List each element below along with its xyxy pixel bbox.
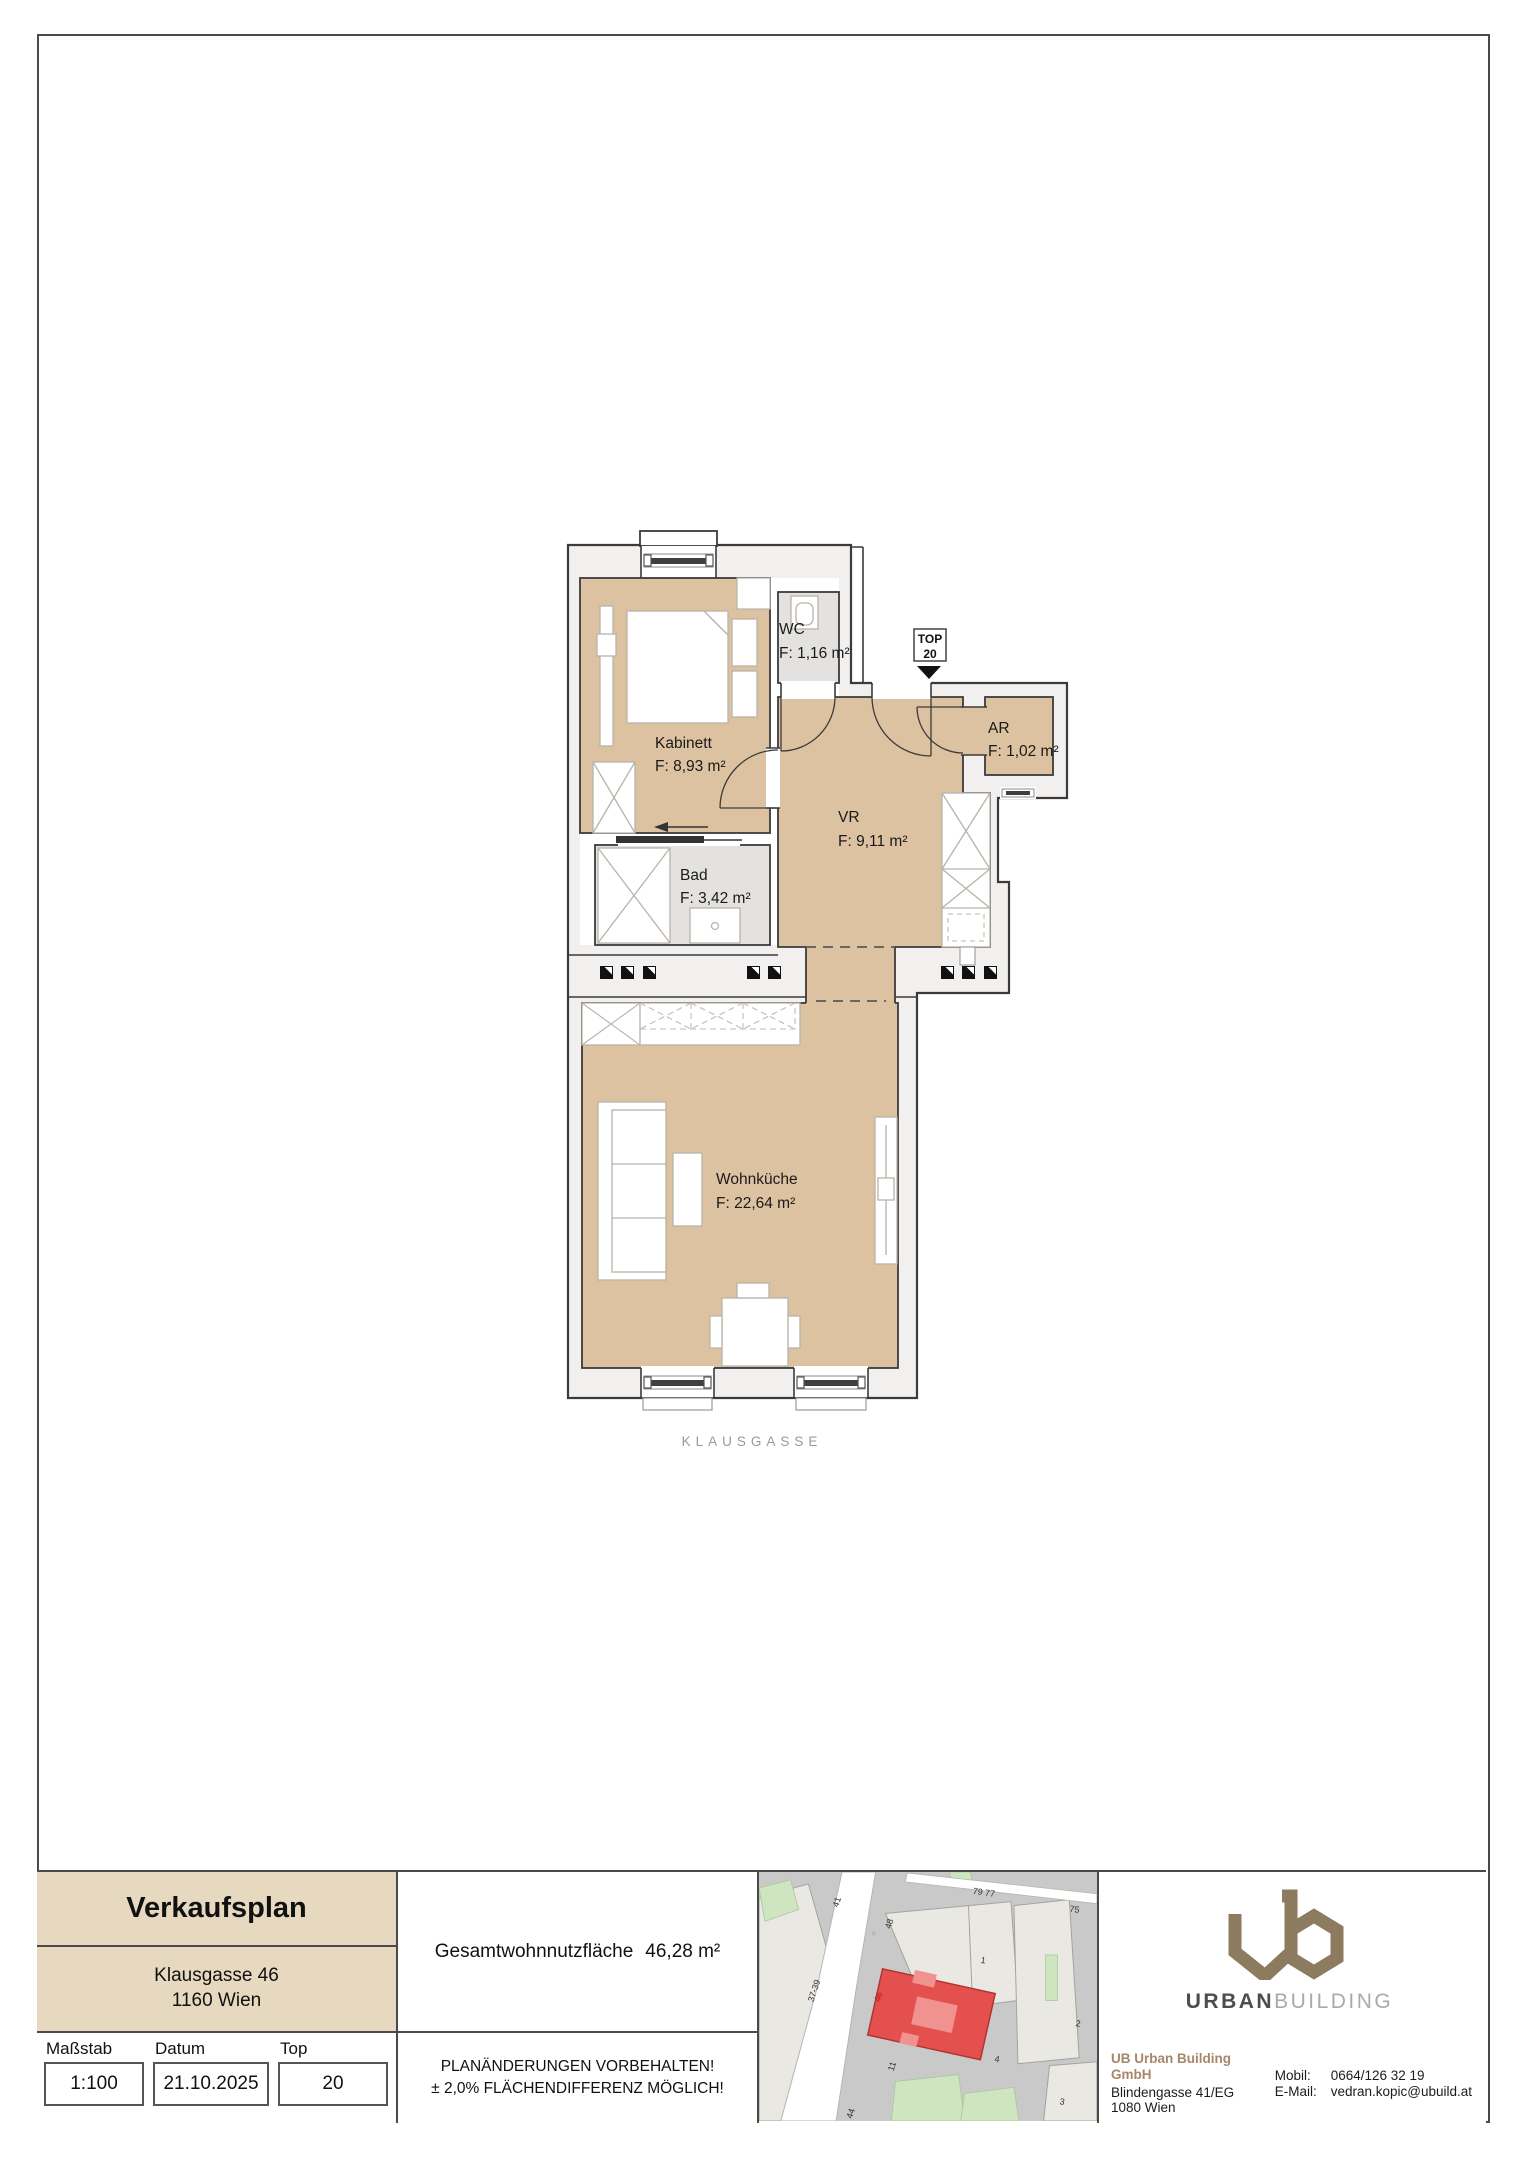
- titleblock-map-column: 41 48 37-39 79 77 75 1 2 4 3 11 44 46: [759, 1872, 1099, 2123]
- map-building: [1044, 2062, 1097, 2121]
- kabinett-wall-notch: [737, 578, 770, 609]
- top-marker-arrow-icon: [917, 666, 941, 679]
- scale-field: Maßstab 1:100: [44, 2038, 144, 2112]
- verkaufsplan-page: Kabinett F: 8,93 m² WC F: 1,16 m² VR F: …: [0, 0, 1527, 2160]
- map-label: 75: [1069, 1904, 1080, 1915]
- window-wohnkueche-right: [794, 1366, 868, 1410]
- titleblock-info-column: Gesamtwohnnutzfläche 46,28 m² PLANÄNDERU…: [398, 1872, 759, 2123]
- plan-title-cell: Verkaufsplan: [37, 1872, 396, 1947]
- dining-table: [722, 1298, 788, 1366]
- email-label: E-Mail:: [1275, 2084, 1331, 2100]
- site-map: 41 48 37-39 79 77 75 1 2 4 3 11 44 46: [759, 1872, 1097, 2121]
- window-kabinett: [640, 531, 717, 578]
- vr-closet: [942, 793, 990, 965]
- titleblock-plan-column: Verkaufsplan Klausgasse 46 1160 Wien Maß…: [37, 1872, 398, 2123]
- nightstand-top: [732, 619, 757, 666]
- address-line2: 1160 Wien: [172, 1989, 261, 2014]
- label-kabinett: Kabinett: [655, 735, 713, 752]
- coffee-table: [673, 1153, 702, 1226]
- flue-icon: [941, 966, 954, 979]
- window-ar: [1000, 787, 1036, 799]
- wardrobe: [600, 606, 613, 746]
- kitchen-counter: [582, 1003, 800, 1045]
- area-kabinett: F: 8,93 m²: [655, 758, 726, 775]
- top-value: 20: [278, 2062, 388, 2106]
- top-label: Top: [280, 2039, 388, 2059]
- label-ar: AR: [988, 720, 1010, 737]
- flue-icon: [962, 966, 975, 979]
- area-bad: F: 3,42 m²: [680, 890, 751, 907]
- street-label: KLAUSGASSE: [682, 1434, 823, 1449]
- top-field: Top 20: [278, 2038, 388, 2112]
- chair-top: [737, 1283, 769, 1298]
- window-wohnkueche-left: [641, 1366, 714, 1410]
- total-area-cell: Gesamtwohnnutzfläche 46,28 m²: [398, 1872, 757, 2033]
- brand-address-block: UB Urban Building GmbH Blindengasse 41/E…: [1111, 2051, 1275, 2116]
- wardrobe-knob: [597, 634, 616, 656]
- bed: [627, 611, 728, 723]
- brand-address2: 1080 Wien: [1111, 2100, 1275, 2116]
- flue-icon: [643, 966, 656, 979]
- top-marker-line2: 20: [923, 647, 937, 661]
- date-value: 21.10.2025: [153, 2062, 269, 2106]
- area-ar: F: 1,02 m²: [988, 743, 1059, 760]
- top-marker: TOP 20: [914, 629, 946, 679]
- duct: [960, 947, 975, 965]
- label-bad: Bad: [680, 867, 708, 884]
- total-area-label: Gesamtwohnnutzfläche: [435, 1941, 634, 1963]
- nightstand-bottom: [732, 671, 757, 717]
- scale-label: Maßstab: [46, 2039, 144, 2059]
- brand-contact-block: Mobil: 0664/126 32 19 E-Mail: vedran.kop…: [1275, 2068, 1472, 2116]
- plan-title: Verkaufsplan: [126, 1892, 307, 1925]
- titleblock-logo-column: URBANBUILDING UB Urban Building GmbH Bli…: [1099, 1872, 1480, 2123]
- flue-icon: [747, 966, 760, 979]
- area-wohnkueche: F: 22,64 m²: [716, 1195, 795, 1212]
- plan-address-cell: Klausgasse 46 1160 Wien: [37, 1947, 396, 2033]
- top-marker-line1: TOP: [918, 632, 942, 646]
- urban-building-logo-icon: [1225, 1888, 1355, 1980]
- chair-left: [710, 1316, 722, 1348]
- flue-icon: [984, 966, 997, 979]
- brand-contact: UB Urban Building GmbH Blindengasse 41/E…: [1111, 2051, 1472, 2116]
- address-line1: Klausgasse 46: [154, 1964, 279, 1989]
- flue-icon: [621, 966, 634, 979]
- mobile-label: Mobil:: [1275, 2068, 1331, 2084]
- area-wc: F: 1,16 m²: [779, 645, 850, 662]
- washbasin: [690, 908, 740, 943]
- area-vr: F: 9,11 m²: [838, 833, 907, 850]
- chair-right: [788, 1316, 800, 1348]
- brand-wordmark: URBANBUILDING: [1099, 1990, 1480, 2014]
- title-block: Verkaufsplan Klausgasse 46 1160 Wien Maß…: [37, 1870, 1486, 2123]
- label-wohnkueche: Wohnküche: [716, 1171, 798, 1188]
- notice-line2: ± 2,0% FLÄCHENDIFFERENZ MÖGLICH!: [431, 2078, 724, 2100]
- notice-cell: PLANÄNDERUNGEN VORBEHALTEN! ± 2,0% FLÄCH…: [398, 2033, 757, 2123]
- wordmark-bold: URBAN: [1186, 1990, 1274, 2013]
- flue-icon: [600, 966, 613, 979]
- floor-plan: Kabinett F: 8,93 m² WC F: 1,16 m² VR F: …: [0, 0, 1527, 2160]
- flue-icon: [768, 966, 781, 979]
- notice-line1: PLANÄNDERUNGEN VORBEHALTEN!: [441, 2056, 715, 2078]
- email-value: vedran.kopic@ubuild.at: [1331, 2084, 1472, 2100]
- corridor-passage: [806, 945, 895, 1005]
- wordmark-light: BUILDING: [1274, 1990, 1393, 2013]
- date-field: Datum 21.10.2025: [153, 2038, 269, 2112]
- scale-value: 1:100: [44, 2062, 144, 2106]
- label-vr: VR: [838, 809, 860, 826]
- brand-address1: Blindengasse 41/EG: [1111, 2085, 1275, 2101]
- total-area-value: 46,28 m²: [645, 1941, 720, 1963]
- brand-company: UB Urban Building GmbH: [1111, 2051, 1275, 2082]
- mobile-value: 0664/126 32 19: [1331, 2068, 1425, 2084]
- label-wc: WC: [779, 621, 805, 638]
- plan-meta-cell: Maßstab 1:100 Datum 21.10.2025 Top 20: [37, 2033, 396, 2117]
- date-label: Datum: [155, 2039, 269, 2059]
